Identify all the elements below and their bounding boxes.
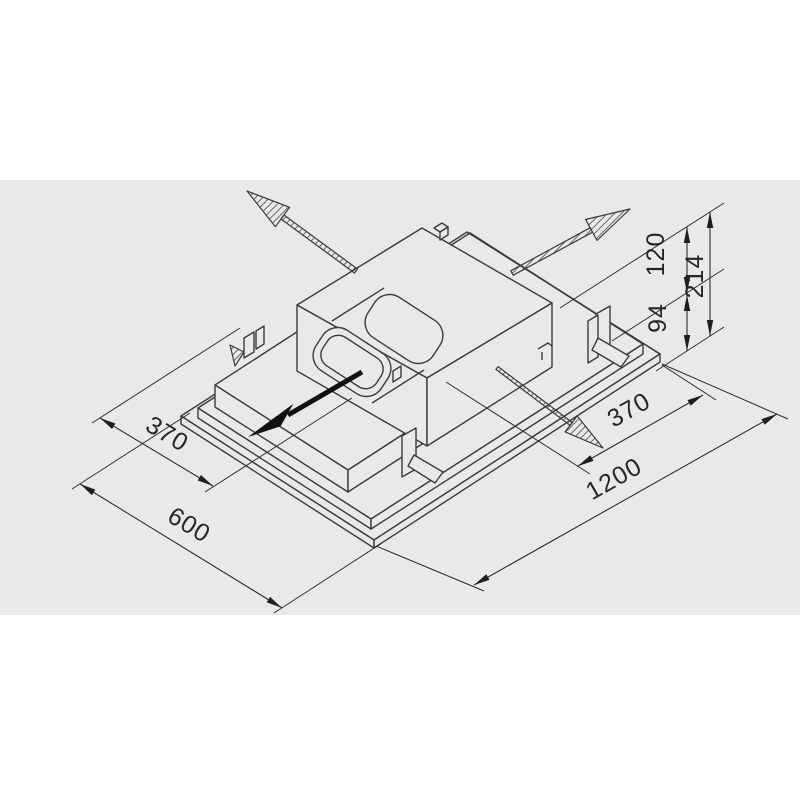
dim-label-94: 94 — [644, 303, 672, 333]
technical-drawing-stage: 370 600 1200 — [0, 0, 800, 800]
isometric-drawing: 370 600 1200 — [0, 0, 800, 800]
dim-label-214: 214 — [681, 254, 709, 299]
dim-label-120: 120 — [642, 232, 670, 277]
drawing-page: 370 600 1200 — [0, 0, 800, 800]
